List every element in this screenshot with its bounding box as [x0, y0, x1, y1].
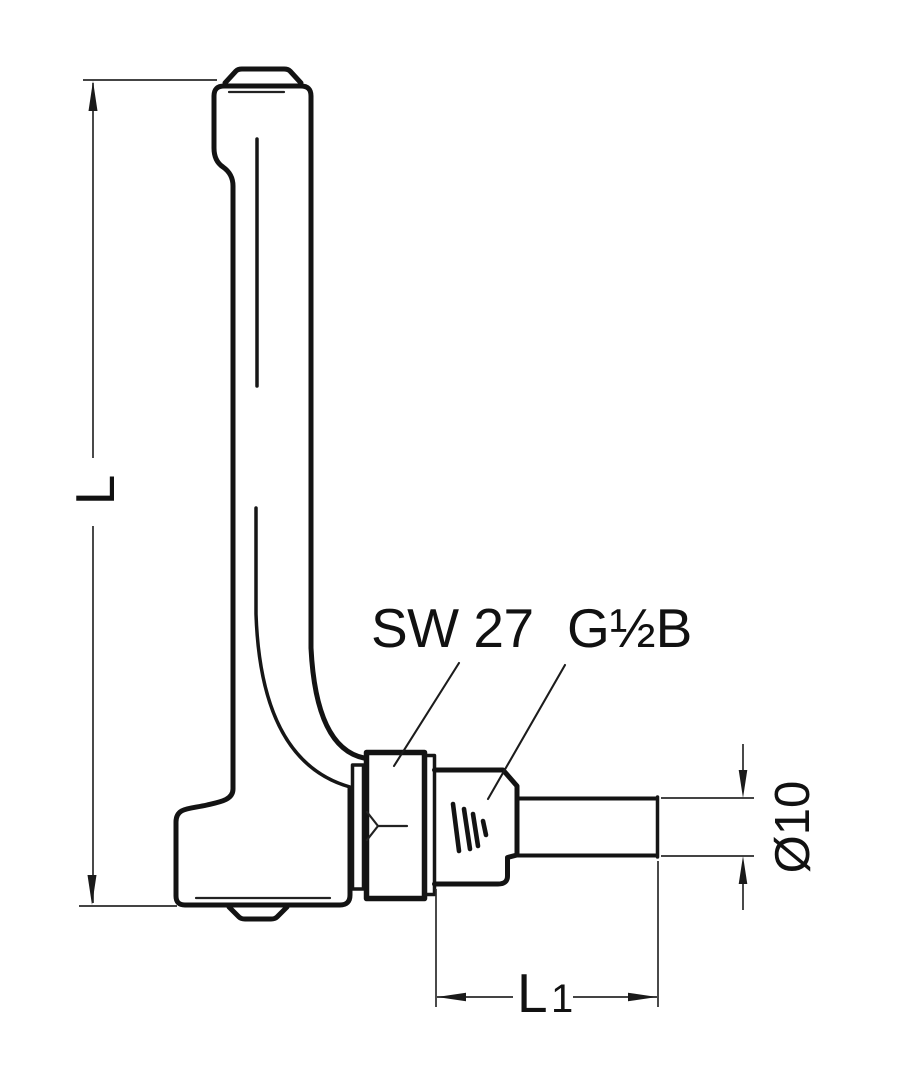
thread-marks — [453, 804, 486, 851]
stem-edges — [517, 799, 657, 856]
arrowhead-down-icon — [739, 770, 748, 798]
arrowhead-up-icon — [89, 81, 98, 111]
top-cap — [225, 69, 301, 83]
dimension-L: L — [64, 80, 217, 906]
arrowhead-right-icon — [628, 993, 657, 1002]
arrowhead-up-icon — [739, 856, 748, 884]
drawing-canvas: L Ø10 L 1 SW 27 G½B — [0, 0, 900, 1080]
arrowhead-down-icon — [88, 875, 97, 905]
body-outline-left — [176, 86, 350, 905]
instrument-body — [176, 69, 364, 919]
dimension-diameter: Ø10 — [661, 744, 820, 910]
label-stem-diameter: Ø10 — [766, 781, 820, 874]
union-nut — [353, 753, 435, 899]
label-wrench-size: SW 27 — [371, 597, 534, 659]
leader-line-thread-size — [488, 665, 565, 799]
inner-tube-line — [256, 139, 350, 787]
technical-drawing: L Ø10 L 1 SW 27 G½B — [0, 0, 900, 1080]
body-outline-right — [224, 86, 364, 758]
callouts: SW 27 G½B — [371, 597, 692, 799]
label-overall-length: L — [64, 475, 126, 506]
arrowhead-left-icon — [437, 993, 466, 1002]
label-thread-size: G½B — [567, 597, 692, 659]
label-insertion-length: L — [517, 962, 548, 1024]
label-insertion-length-subscript: 1 — [551, 977, 573, 1021]
probe-stem — [517, 797, 658, 857]
leader-line-wrench-size — [394, 663, 459, 766]
bottom-tab — [229, 907, 287, 919]
threaded-fitting — [435, 770, 518, 884]
hex-nut-far-face — [425, 756, 435, 895]
neck-flange — [353, 765, 364, 889]
hex-nut-chamfer-lines — [367, 812, 407, 840]
